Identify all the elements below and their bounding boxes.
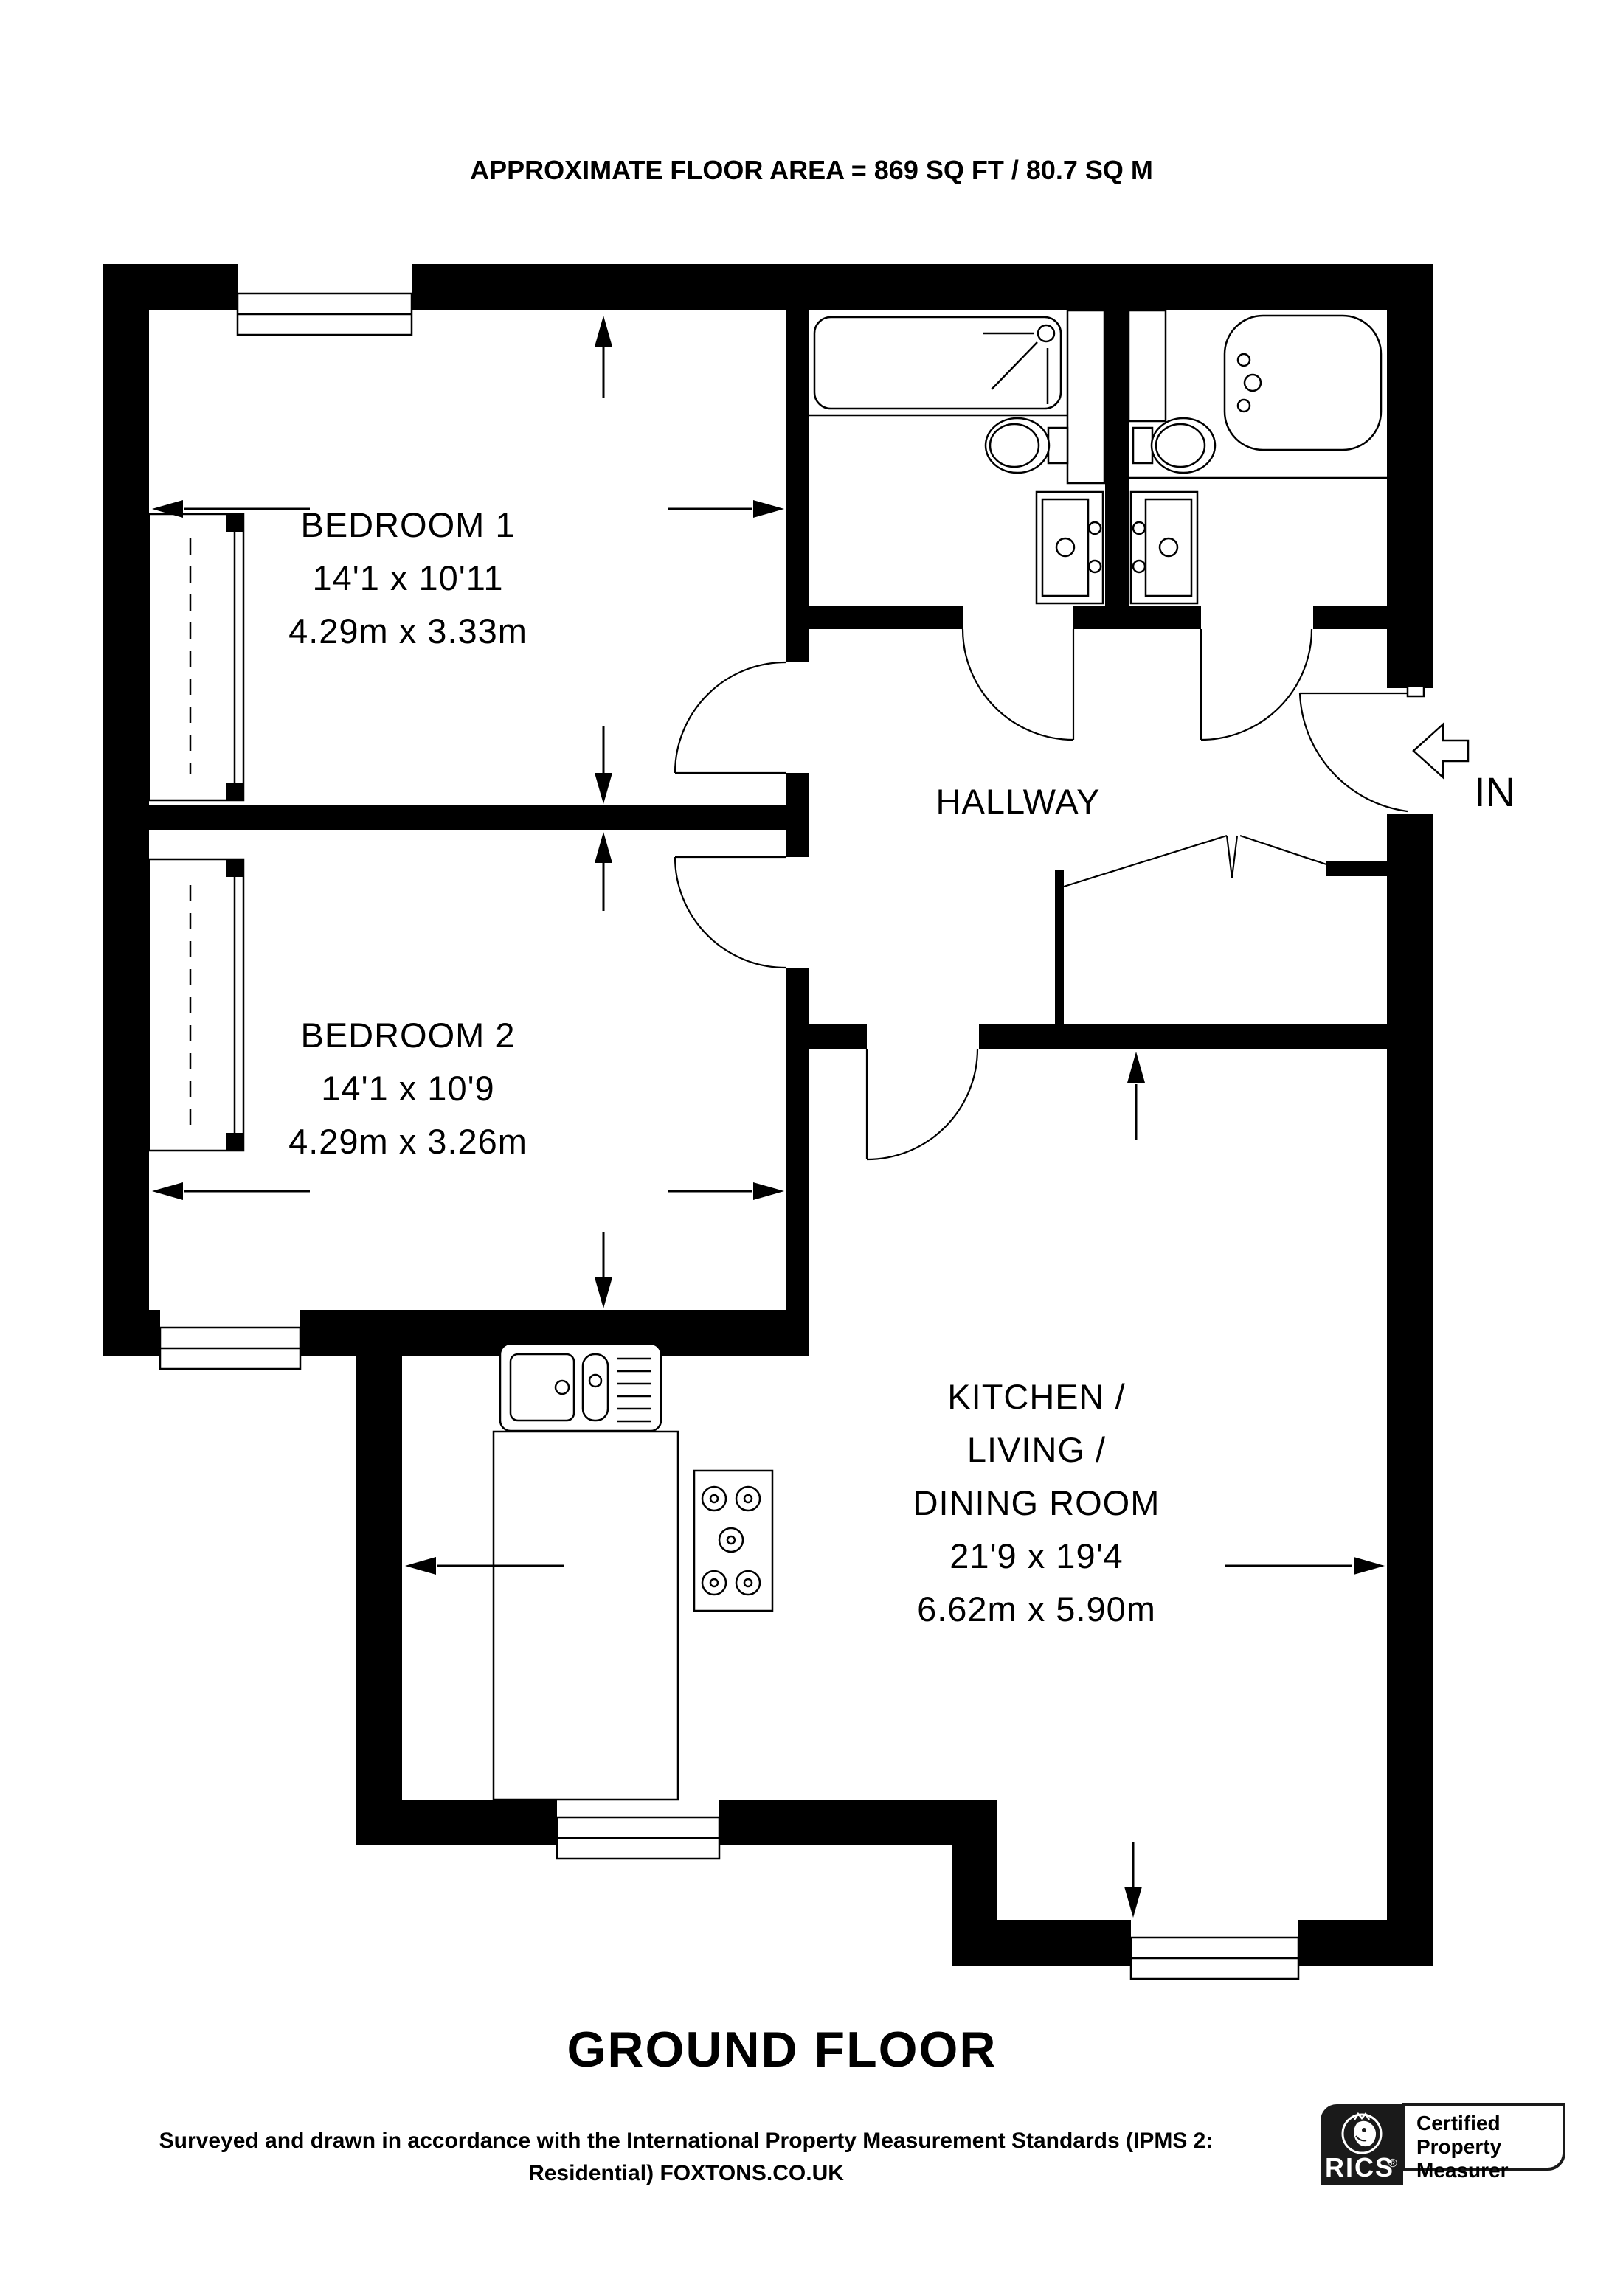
kitchen-dims-imperial: 21'9 x 19'4 xyxy=(949,1536,1123,1575)
entrance-label: IN xyxy=(1474,769,1515,815)
wall-kitchen-left xyxy=(356,1356,402,1845)
toilet-icon xyxy=(1133,418,1215,473)
window-icon xyxy=(238,263,412,335)
entry-arrow-icon xyxy=(1413,724,1468,777)
door-arc-icon-bedroom2 xyxy=(675,857,786,968)
bathroom1-fixtures xyxy=(809,311,1104,603)
rics-registered-mark: ® xyxy=(1388,2157,1397,2170)
shower-bath-icon xyxy=(814,317,1061,409)
shower-head-icon xyxy=(1038,325,1054,341)
basin-vanity-icon xyxy=(1131,492,1197,603)
footer-line1: Surveyed and drawn in accordance with th… xyxy=(159,2129,1214,2153)
floor-area-title: APPROXIMATE FLOOR AREA = 869 SQ FT / 80.… xyxy=(470,155,1153,185)
kitchen-dims-metric: 6.62m x 5.90m xyxy=(917,1589,1156,1629)
counter xyxy=(494,1432,678,1800)
kitchen-name-line3: DINING ROOM xyxy=(913,1483,1160,1522)
wall-bathroom1-bottom-b xyxy=(1073,606,1105,629)
bedroom2-name: BEDROOM 2 xyxy=(300,1016,515,1055)
window-icon xyxy=(160,1308,300,1369)
bathtub-icon xyxy=(1225,316,1381,450)
rics-badge: RICS ® Certified Property Measurer xyxy=(1321,2104,1564,2185)
wardrobes xyxy=(149,514,243,1151)
window-icon xyxy=(557,1798,719,1859)
duct-box xyxy=(1067,311,1104,483)
entrance: IN xyxy=(1413,724,1515,815)
bedroom1-dims-metric: 4.29m x 3.33m xyxy=(288,611,527,651)
cert-line2: Property xyxy=(1416,2135,1502,2158)
hallway-name: HALLWAY xyxy=(936,782,1101,821)
wall-bathroom2-bottom-a xyxy=(1129,606,1201,629)
wall-cupboard-left xyxy=(1055,870,1064,1024)
rics-brand: RICS xyxy=(1325,2152,1394,2182)
bedroom2-dims-imperial: 14'1 x 10'9 xyxy=(321,1069,494,1108)
wall-hall-kitchen-a xyxy=(786,1024,867,1049)
door-arc-icon-bathroom1 xyxy=(963,629,1073,740)
door-arc-icon-bathroom2 xyxy=(1201,629,1312,740)
double-door-icon-cupboard xyxy=(1064,836,1326,887)
wardrobe-icon xyxy=(149,514,243,800)
wall-bathroom2-bottom-b xyxy=(1313,606,1387,629)
wall-bedroom1-right xyxy=(786,310,809,662)
wall-bathroom1-bottom-a xyxy=(809,606,963,629)
floor-name: GROUND FLOOR xyxy=(567,2022,997,2078)
wall-right-lower xyxy=(1387,814,1433,1966)
cert-line3: Measurer xyxy=(1416,2159,1509,2182)
kitchen-name-line2: LIVING / xyxy=(967,1430,1106,1469)
kitchen-sink-icon xyxy=(500,1344,661,1431)
hob-icon xyxy=(694,1471,772,1611)
footer-line2: Residential) FOXTONS.CO.UK xyxy=(528,2161,844,2185)
wardrobe-icon xyxy=(149,859,243,1151)
door-arc-icon-kitchen xyxy=(867,1049,977,1159)
cert-line1: Certified xyxy=(1416,2112,1501,2134)
basin-vanity-icon xyxy=(1037,492,1103,603)
toilet-icon xyxy=(986,418,1067,473)
room-labels: BEDROOM 1 14'1 x 10'11 4.29m x 3.33m BED… xyxy=(288,505,1160,1629)
wall-door-stub xyxy=(786,773,809,857)
door-arc-icon-bedroom1 xyxy=(675,662,786,773)
kitchen-fixtures xyxy=(494,1344,772,1800)
bedroom1-dims-imperial: 14'1 x 10'11 xyxy=(312,558,503,597)
bedroom2-dims-metric: 4.29m x 3.26m xyxy=(288,1122,527,1161)
wall-cupboard-stub xyxy=(1326,861,1387,876)
wall-hall-kitchen-b xyxy=(979,1024,1387,1049)
door-arc-icon-entrance xyxy=(1300,686,1424,811)
kitchen-name-line1: KITCHEN / xyxy=(947,1377,1125,1416)
dimension-arrows xyxy=(152,316,1385,1918)
entrance-threshold xyxy=(1408,686,1424,696)
bathroom2-fixtures xyxy=(1129,311,1387,603)
wall-bedroom2-right xyxy=(786,968,809,1310)
window-icon xyxy=(1131,1918,1298,1979)
floorplan-page: APPROXIMATE FLOOR AREA = 869 SQ FT / 80.… xyxy=(0,0,1623,2296)
bedroom1-name: BEDROOM 1 xyxy=(300,505,515,544)
wall-bathroom-divider xyxy=(1105,310,1129,629)
duct-box xyxy=(1129,311,1166,421)
wall-right-upper xyxy=(1387,264,1433,688)
wall-bedroom-divider xyxy=(103,805,786,830)
